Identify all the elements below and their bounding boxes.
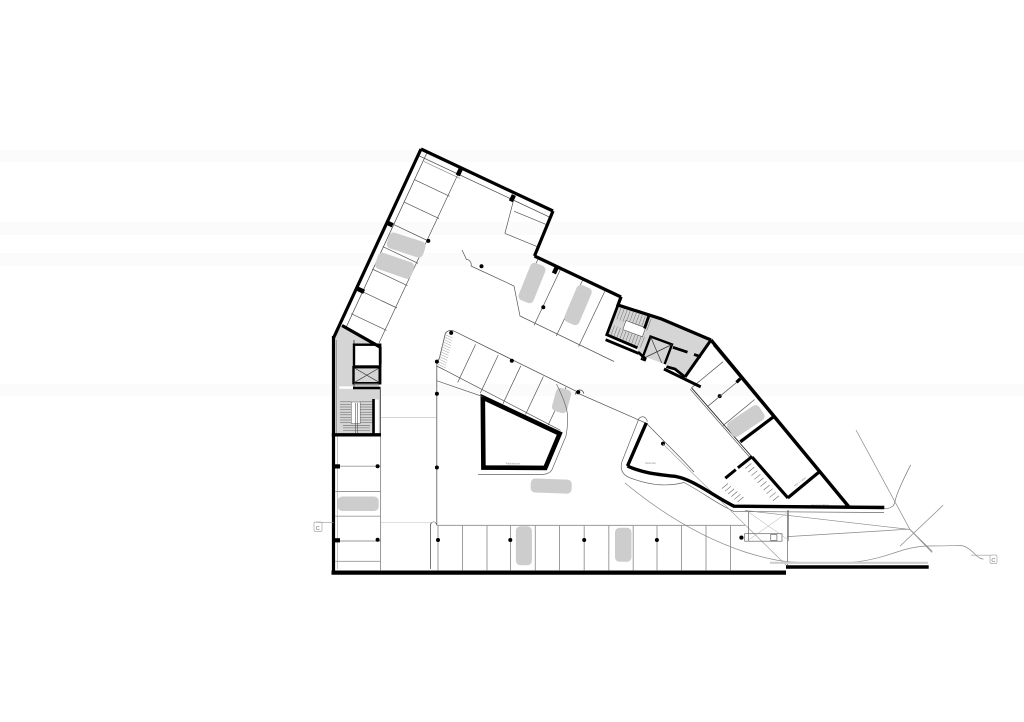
svg-text:Parkebene: Parkebene: [506, 461, 521, 465]
svg-text:C: C: [316, 526, 320, 532]
svg-text:Motorrad: Motorrad: [645, 461, 656, 465]
svg-text:C: C: [991, 558, 995, 564]
